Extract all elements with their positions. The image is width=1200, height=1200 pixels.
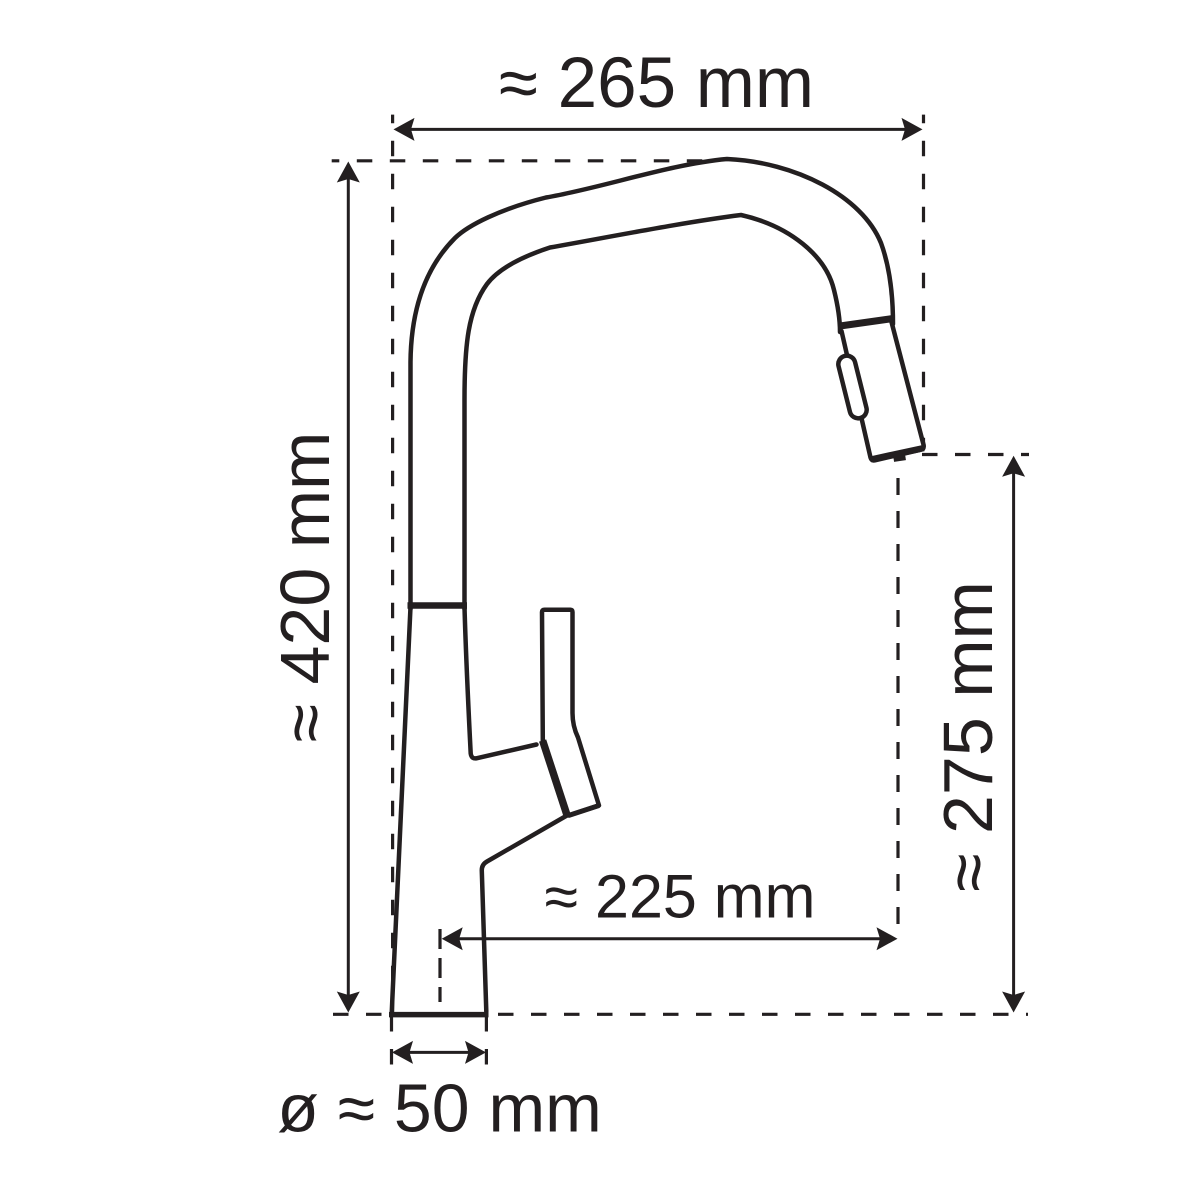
svg-text:≈ 225 mm: ≈ 225 mm [545, 863, 816, 931]
svg-text:≈ 275 mm: ≈ 275 mm [929, 581, 1007, 892]
svg-text:ø ≈ 50 mm: ø ≈ 50 mm [277, 1071, 601, 1147]
svg-text:≈ 265 mm: ≈ 265 mm [499, 44, 814, 123]
svg-text:≈ 420 mm: ≈ 420 mm [266, 432, 344, 743]
